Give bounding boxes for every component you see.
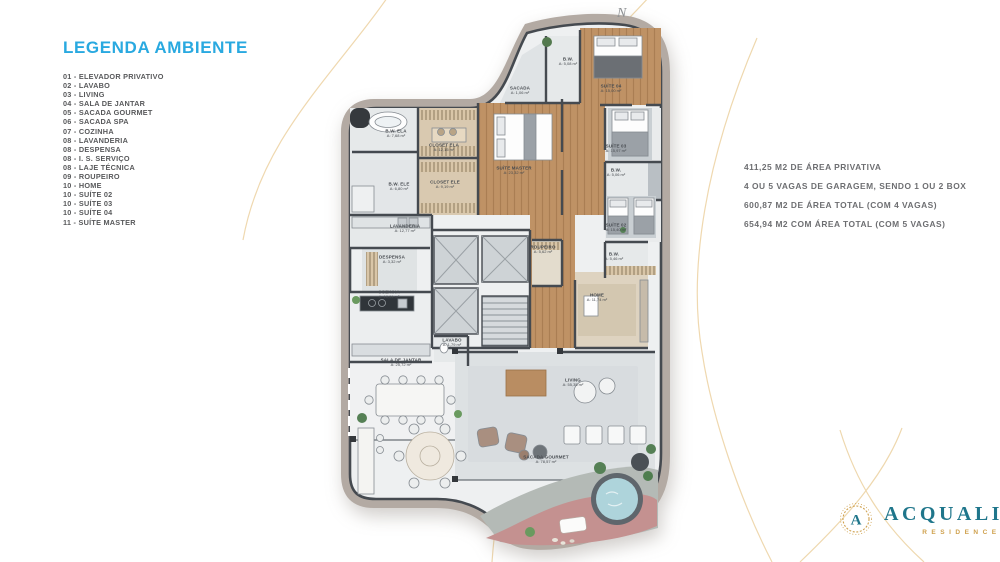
floorplan [341, 14, 670, 550]
logo-wordmark: ACQUALINA RESIDENCE [884, 503, 1000, 536]
brand-subtitle: RESIDENCE [922, 529, 1000, 536]
legend-panel: LEGENDA AMBIENTE 01 - ELEVADOR PRIVATIVO… [63, 38, 303, 227]
legend-item: 08 - I. S. SERVIÇO [63, 154, 303, 163]
legend-list: 01 - ELEVADOR PRIVATIVO02 - LAVABO03 - L… [63, 72, 303, 227]
legend-item: 10 - SUÍTE 03 [63, 199, 303, 208]
legend-item: 10 - SUÍTE 02 [63, 190, 303, 199]
legend-item: 07 - COZINHA [63, 127, 303, 136]
legend-item: 08 - LAJE TÉCNICA [63, 163, 303, 172]
logo-monogram: A [851, 513, 862, 529]
legend-item: 05 - SACADA GOURMET [63, 108, 303, 117]
compass-north-label: N [617, 6, 626, 22]
legend-item: 03 - LIVING [63, 90, 303, 99]
info-panel: 411,25 M2 DE ÁREA PRIVATIVA4 OU 5 VAGAS … [744, 158, 994, 234]
legend-item: 04 - SALA DE JANTAR [63, 99, 303, 108]
legend-item: 10 - SUÍTE 04 [63, 208, 303, 217]
legend-item: 08 - DESPENSA [63, 145, 303, 154]
info-line: 654,94 M2 COM ÁREA TOTAL (COM 5 VAGAS) [744, 215, 994, 234]
info-line: 411,25 M2 DE ÁREA PRIVATIVA [744, 158, 994, 177]
page: LEGENDA AMBIENTE 01 - ELEVADOR PRIVATIVO… [0, 0, 1000, 562]
brand-logo: A ACQUALINA RESIDENCE [836, 499, 1000, 539]
legend-item: 06 - SACADA SPA [63, 117, 303, 126]
legend-item: 08 - LAVANDERIA [63, 136, 303, 145]
info-line: 4 OU 5 VAGAS DE GARAGEM, SENDO 1 OU 2 BO… [744, 177, 994, 196]
legend-item: 10 - HOME [63, 181, 303, 190]
legend-item: 01 - ELEVADOR PRIVATIVO [63, 72, 303, 81]
brand-name: ACQUALINA [884, 503, 1000, 526]
logo-rosette-icon: A [836, 499, 876, 539]
info-line: 600,87 M2 DE ÁREA TOTAL (COM 4 VAGAS) [744, 196, 994, 215]
legend-title: LEGENDA AMBIENTE [63, 38, 303, 58]
legend-item: 11 - SUÍTE MASTER [63, 218, 303, 227]
legend-item: 02 - LAVABO [63, 81, 303, 90]
legend-item: 09 - ROUPEIRO [63, 172, 303, 181]
